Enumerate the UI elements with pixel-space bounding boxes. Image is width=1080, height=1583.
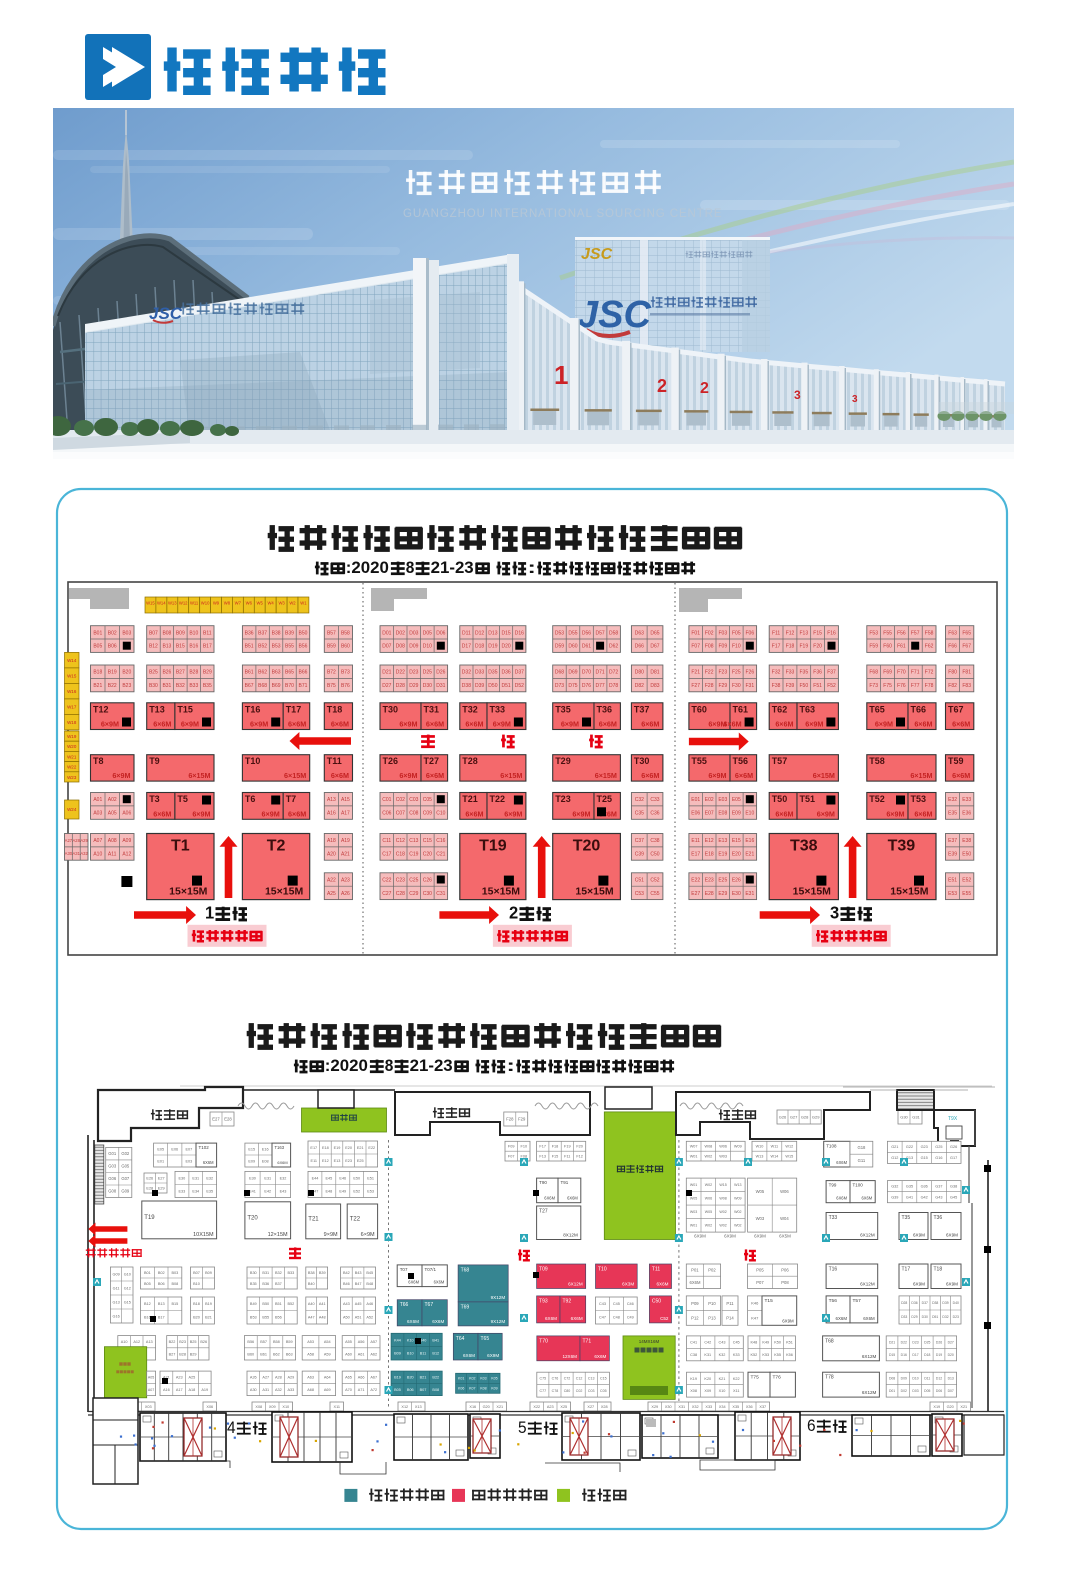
svg-text:F25: F25 bbox=[732, 670, 741, 676]
svg-text:W15: W15 bbox=[785, 1154, 793, 1158]
svg-text:K52: K52 bbox=[751, 1353, 758, 1357]
svg-text:B05: B05 bbox=[394, 1388, 401, 1392]
svg-text:G43: G43 bbox=[935, 1196, 942, 1200]
svg-text:6×9M: 6×9M bbox=[561, 720, 579, 729]
svg-text:B43: B43 bbox=[355, 1271, 362, 1275]
svg-text:A07: A07 bbox=[148, 1388, 154, 1392]
svg-text:6: 6 bbox=[807, 1416, 816, 1435]
svg-text:E51: E51 bbox=[367, 1176, 374, 1180]
svg-text:W15: W15 bbox=[146, 601, 155, 606]
svg-text:E18: E18 bbox=[705, 851, 714, 857]
svg-text:W2: W2 bbox=[289, 601, 296, 606]
svg-text:6×15M: 6×15M bbox=[284, 771, 306, 780]
svg-text:A56: A56 bbox=[358, 1340, 365, 1344]
svg-text:6X12M: 6X12M bbox=[860, 1233, 875, 1238]
svg-text:B57: B57 bbox=[327, 630, 336, 636]
svg-text:D03: D03 bbox=[409, 630, 418, 636]
svg-text:T100: T100 bbox=[853, 1183, 864, 1188]
svg-text:D21: D21 bbox=[889, 1340, 895, 1344]
svg-text:6X6M: 6X6M bbox=[407, 1319, 419, 1324]
svg-text:F26: F26 bbox=[745, 670, 754, 676]
svg-text:X33: X33 bbox=[705, 1405, 712, 1409]
svg-text:E22: E22 bbox=[368, 1146, 375, 1150]
svg-text:G03: G03 bbox=[108, 1164, 117, 1169]
svg-text:W05: W05 bbox=[756, 1189, 765, 1194]
svg-text:T16: T16 bbox=[829, 1267, 838, 1273]
svg-text:E13: E13 bbox=[334, 1159, 341, 1163]
svg-text:D01: D01 bbox=[382, 630, 391, 636]
svg-text:W22: W22 bbox=[67, 765, 77, 770]
svg-text:6×15M: 6×15M bbox=[188, 771, 210, 780]
svg-text:D39: D39 bbox=[475, 683, 484, 689]
svg-text:X03: X03 bbox=[145, 1405, 152, 1409]
svg-text:6×6M: 6×6M bbox=[288, 720, 306, 729]
svg-text:B18: B18 bbox=[93, 670, 102, 676]
svg-text:B57: B57 bbox=[260, 1340, 267, 1344]
svg-text:C43: C43 bbox=[719, 1341, 726, 1345]
svg-text:B20: B20 bbox=[193, 1316, 200, 1320]
svg-text:G11: G11 bbox=[858, 1158, 866, 1163]
svg-text:D17: D17 bbox=[462, 644, 471, 650]
svg-text:D66: D66 bbox=[635, 644, 644, 650]
svg-text:C47: C47 bbox=[599, 1316, 606, 1320]
svg-text:A17: A17 bbox=[176, 1388, 183, 1392]
svg-text:W23: W23 bbox=[67, 775, 77, 780]
svg-text:T15: T15 bbox=[177, 704, 193, 714]
svg-text:D27: D27 bbox=[382, 683, 391, 689]
svg-text:B66: B66 bbox=[299, 670, 308, 676]
svg-text:A15: A15 bbox=[341, 797, 350, 803]
svg-text:X35: X35 bbox=[732, 1405, 739, 1409]
svg-text:W02: W02 bbox=[734, 1224, 741, 1228]
svg-text:B32: B32 bbox=[275, 1271, 282, 1275]
svg-text:D63: D63 bbox=[635, 630, 644, 636]
svg-text:6X6M: 6X6M bbox=[836, 1316, 848, 1321]
svg-text:B25: B25 bbox=[149, 670, 158, 676]
svg-text:21-23: 21-23 bbox=[410, 1057, 453, 1075]
svg-text:A02: A02 bbox=[108, 797, 117, 803]
svg-text:B28: B28 bbox=[179, 1352, 186, 1356]
svg-text:G17: G17 bbox=[950, 1156, 957, 1160]
svg-text:F78: F78 bbox=[925, 683, 934, 689]
svg-text:E02: E02 bbox=[705, 797, 714, 803]
svg-text:D20: D20 bbox=[948, 1353, 954, 1357]
svg-text:9×9M: 9×9M bbox=[324, 1232, 338, 1238]
svg-text:E30: E30 bbox=[249, 1176, 256, 1180]
svg-text:G39: G39 bbox=[891, 1196, 898, 1200]
svg-text:B62: B62 bbox=[273, 1352, 280, 1356]
svg-text:D09: D09 bbox=[901, 1377, 907, 1381]
svg-text:T33: T33 bbox=[490, 704, 506, 714]
svg-text:F59: F59 bbox=[869, 644, 878, 650]
svg-text:C10: C10 bbox=[436, 811, 445, 817]
svg-text:E12: E12 bbox=[322, 1159, 329, 1163]
svg-text:A10: A10 bbox=[93, 851, 102, 857]
svg-text:F69: F69 bbox=[883, 670, 892, 676]
svg-text:K07: K07 bbox=[469, 1387, 475, 1391]
svg-text:T163: T163 bbox=[275, 1145, 285, 1150]
svg-text:E09: E09 bbox=[732, 811, 741, 817]
svg-text:B10: B10 bbox=[407, 1352, 414, 1356]
svg-text:C23: C23 bbox=[396, 877, 405, 883]
svg-text:6X9M: 6X9M bbox=[694, 1234, 706, 1239]
svg-text:F15: F15 bbox=[552, 1154, 559, 1158]
svg-text:C19: C19 bbox=[409, 851, 418, 857]
svg-text:B11: B11 bbox=[420, 1352, 426, 1356]
svg-text:F09: F09 bbox=[508, 1145, 515, 1149]
svg-text:K02: K02 bbox=[469, 1377, 475, 1381]
svg-text:C43: C43 bbox=[599, 1302, 606, 1306]
svg-text:4: 4 bbox=[227, 1418, 236, 1437]
svg-text:C06: C06 bbox=[382, 811, 391, 817]
svg-text:F50: F50 bbox=[799, 683, 808, 689]
svg-text:B09: B09 bbox=[205, 1271, 212, 1275]
svg-text:C09: C09 bbox=[423, 811, 432, 817]
svg-text:D13: D13 bbox=[948, 1377, 954, 1381]
svg-text:B56: B56 bbox=[275, 1316, 282, 1320]
svg-text:T70: T70 bbox=[539, 1338, 548, 1344]
svg-text:10X15M: 10X15M bbox=[193, 1232, 214, 1238]
svg-text:B55: B55 bbox=[285, 644, 294, 650]
svg-text:T36: T36 bbox=[934, 1215, 943, 1221]
svg-text:W04: W04 bbox=[780, 1216, 789, 1221]
svg-text:B23: B23 bbox=[179, 1340, 186, 1344]
svg-text:F82: F82 bbox=[948, 683, 957, 689]
svg-text:A16: A16 bbox=[327, 811, 336, 817]
svg-text:W1: W1 bbox=[300, 601, 307, 606]
svg-text:C12: C12 bbox=[396, 838, 405, 844]
svg-text:T63: T63 bbox=[800, 704, 816, 714]
svg-text:G25: G25 bbox=[935, 1145, 942, 1149]
svg-text:C76: C76 bbox=[552, 1377, 559, 1381]
svg-text:F38: F38 bbox=[772, 683, 781, 689]
svg-text:E49: E49 bbox=[339, 1189, 346, 1193]
svg-text:B12: B12 bbox=[432, 1352, 439, 1356]
svg-text:A41: A41 bbox=[319, 1302, 326, 1306]
svg-text:B61: B61 bbox=[260, 1352, 267, 1356]
svg-text:T37: T37 bbox=[634, 704, 650, 714]
svg-text:F67: F67 bbox=[962, 644, 971, 650]
svg-text:C75: C75 bbox=[540, 1377, 547, 1381]
svg-text:T75: T75 bbox=[751, 1375, 760, 1381]
svg-text:E06: E06 bbox=[691, 811, 700, 817]
svg-text:B20: B20 bbox=[407, 1376, 414, 1380]
svg-text:6X9M: 6X9M bbox=[946, 1282, 958, 1287]
svg-text:C02: C02 bbox=[576, 1389, 583, 1393]
svg-text:F76: F76 bbox=[897, 683, 906, 689]
svg-text:F19: F19 bbox=[564, 1145, 571, 1149]
svg-text:B13: B13 bbox=[158, 1302, 165, 1306]
svg-text:C02: C02 bbox=[396, 797, 405, 803]
svg-text:W02: W02 bbox=[734, 1210, 741, 1214]
svg-text:B37: B37 bbox=[258, 630, 267, 636]
svg-text:D03: D03 bbox=[912, 1389, 918, 1393]
svg-text:E43: E43 bbox=[280, 1189, 287, 1193]
svg-text:W19: W19 bbox=[67, 734, 77, 739]
svg-text:D23: D23 bbox=[409, 670, 418, 676]
svg-text:D25: D25 bbox=[924, 1340, 930, 1344]
svg-text:D35: D35 bbox=[488, 670, 497, 676]
svg-text:W10: W10 bbox=[201, 601, 210, 606]
svg-text:B38: B38 bbox=[308, 1271, 315, 1275]
svg-text:T19: T19 bbox=[144, 1215, 155, 1221]
svg-text:D07: D07 bbox=[948, 1389, 954, 1393]
svg-text:6×9M: 6×9M bbox=[399, 771, 417, 780]
svg-text:A12: A12 bbox=[133, 1340, 140, 1344]
svg-text:T20: T20 bbox=[573, 838, 601, 855]
svg-text:T36: T36 bbox=[597, 704, 613, 714]
svg-text:X11: X11 bbox=[733, 1389, 739, 1393]
svg-text:G20: G20 bbox=[947, 1405, 954, 1409]
svg-text:D28: D28 bbox=[396, 683, 405, 689]
svg-text:W15: W15 bbox=[67, 673, 77, 678]
svg-text:K20: K20 bbox=[704, 1377, 711, 1381]
svg-text:T27: T27 bbox=[539, 1209, 548, 1215]
svg-text:A13: A13 bbox=[146, 1340, 153, 1344]
svg-text:B10: B10 bbox=[193, 1282, 200, 1286]
svg-text:D12: D12 bbox=[936, 1377, 942, 1381]
svg-text:P06: P06 bbox=[781, 1268, 789, 1273]
svg-text:E36: E36 bbox=[962, 811, 971, 817]
svg-text:E27: E27 bbox=[158, 1176, 165, 1180]
svg-text:D27: D27 bbox=[948, 1340, 954, 1344]
svg-text:T15: T15 bbox=[765, 1298, 774, 1304]
svg-text:C29: C29 bbox=[409, 891, 418, 897]
svg-text:C15: C15 bbox=[600, 1377, 607, 1381]
svg-text:F81: F81 bbox=[962, 670, 971, 676]
svg-text:C72: C72 bbox=[564, 1377, 571, 1381]
svg-text:F07: F07 bbox=[691, 644, 700, 650]
svg-text:3: 3 bbox=[852, 394, 858, 405]
svg-text:6X6M: 6X6M bbox=[567, 1196, 578, 1201]
svg-text:D30: D30 bbox=[423, 683, 432, 689]
svg-text:K46: K46 bbox=[751, 1301, 759, 1306]
svg-text:F22: F22 bbox=[705, 670, 714, 676]
svg-text:B22: B22 bbox=[108, 683, 117, 689]
svg-text:T22: T22 bbox=[490, 794, 506, 804]
svg-text:B59: B59 bbox=[286, 1340, 293, 1344]
svg-text:D02: D02 bbox=[901, 1389, 907, 1393]
svg-text:A55: A55 bbox=[345, 1340, 352, 1344]
svg-text:D29: D29 bbox=[911, 1315, 917, 1319]
svg-text:W13: W13 bbox=[734, 1183, 741, 1187]
svg-text:B03: B03 bbox=[172, 1271, 179, 1275]
svg-text:T29: T29 bbox=[555, 756, 571, 766]
svg-text:D36: D36 bbox=[502, 670, 511, 676]
svg-text:B15: B15 bbox=[176, 644, 185, 650]
svg-text:X28: X28 bbox=[601, 1405, 608, 1409]
svg-text:6×9M: 6×9M bbox=[805, 720, 823, 729]
svg-text:A26: A26 bbox=[250, 1376, 257, 1380]
svg-text:F12: F12 bbox=[786, 630, 795, 636]
svg-text:G01: G01 bbox=[108, 1151, 117, 1156]
svg-text:D55: D55 bbox=[568, 630, 577, 636]
svg-text:B45: B45 bbox=[366, 1271, 373, 1275]
svg-text:A22: A22 bbox=[327, 877, 336, 883]
svg-text:X37: X37 bbox=[759, 1405, 766, 1409]
svg-text:D05: D05 bbox=[423, 630, 432, 636]
svg-text:W02: W02 bbox=[719, 1210, 726, 1214]
svg-text:A58: A58 bbox=[307, 1352, 314, 1356]
svg-text:D16: D16 bbox=[901, 1353, 907, 1357]
svg-text:E19: E19 bbox=[718, 851, 727, 857]
svg-text:T93: T93 bbox=[539, 1298, 548, 1304]
svg-text:A05: A05 bbox=[108, 811, 117, 817]
svg-text:2: 2 bbox=[657, 376, 667, 396]
svg-text:G12: G12 bbox=[891, 1156, 898, 1160]
svg-text:E50: E50 bbox=[353, 1176, 360, 1180]
svg-text:B31: B31 bbox=[162, 683, 171, 689]
svg-text:B09: B09 bbox=[176, 630, 185, 636]
svg-text:W8: W8 bbox=[224, 601, 231, 606]
svg-text:JSC: JSC bbox=[581, 246, 613, 263]
svg-text:6X9M: 6X9M bbox=[754, 1234, 766, 1239]
svg-text:T61: T61 bbox=[733, 704, 749, 714]
svg-text:B17: B17 bbox=[203, 644, 212, 650]
svg-text:1: 1 bbox=[554, 360, 568, 390]
svg-text:15×15M: 15×15M bbox=[482, 886, 520, 898]
svg-text:W18: W18 bbox=[67, 720, 77, 725]
svg-text:E06: E06 bbox=[171, 1147, 178, 1151]
svg-text:F29: F29 bbox=[718, 683, 727, 689]
svg-text:21-23: 21-23 bbox=[431, 559, 474, 577]
svg-text:D11: D11 bbox=[924, 1377, 930, 1381]
svg-text:A62: A62 bbox=[370, 1352, 377, 1356]
svg-text:K47: K47 bbox=[751, 1315, 759, 1320]
svg-text:E32: E32 bbox=[206, 1176, 213, 1180]
svg-text:D23: D23 bbox=[912, 1340, 918, 1344]
svg-text:T18: T18 bbox=[934, 1267, 943, 1273]
svg-text:T8: T8 bbox=[93, 756, 104, 766]
svg-text:D71: D71 bbox=[596, 670, 605, 676]
svg-text:T28: T28 bbox=[462, 756, 478, 766]
svg-text:G41: G41 bbox=[906, 1196, 913, 1200]
svg-text:P08: P08 bbox=[781, 1280, 789, 1285]
svg-text:A43: A43 bbox=[343, 1302, 350, 1306]
svg-text:D32: D32 bbox=[942, 1315, 948, 1319]
svg-text:D62: D62 bbox=[609, 644, 618, 650]
svg-text:T64: T64 bbox=[456, 1336, 465, 1342]
svg-text:W12: W12 bbox=[179, 601, 188, 606]
svg-text:D33: D33 bbox=[475, 670, 484, 676]
svg-text:T50: T50 bbox=[772, 794, 788, 804]
svg-text:D21: D21 bbox=[382, 670, 391, 676]
svg-text:B15: B15 bbox=[172, 1302, 179, 1306]
svg-text:C16: C16 bbox=[436, 838, 445, 844]
svg-text:B05: B05 bbox=[93, 644, 102, 650]
svg-text:B19: B19 bbox=[394, 1376, 401, 1380]
svg-text:W11: W11 bbox=[771, 1145, 779, 1149]
svg-text:C42: C42 bbox=[704, 1341, 711, 1345]
svg-text:W03: W03 bbox=[756, 1216, 765, 1221]
svg-text:D53: D53 bbox=[555, 630, 564, 636]
svg-text:T09: T09 bbox=[539, 1267, 548, 1273]
svg-text:A28: A28 bbox=[275, 1376, 282, 1380]
svg-text:C33: C33 bbox=[650, 797, 659, 803]
svg-text:6×6M: 6×6M bbox=[288, 809, 306, 818]
svg-text:D38: D38 bbox=[462, 683, 471, 689]
svg-text:W03: W03 bbox=[719, 1154, 727, 1158]
svg-text:E18: E18 bbox=[322, 1146, 329, 1150]
svg-text:X27: X27 bbox=[587, 1405, 594, 1409]
svg-text:B31: B31 bbox=[262, 1271, 269, 1275]
svg-text:6X6M: 6X6M bbox=[432, 1319, 444, 1324]
svg-text:W01: W01 bbox=[690, 1183, 697, 1187]
svg-text:G05: G05 bbox=[121, 1164, 130, 1169]
svg-text:G26: G26 bbox=[950, 1145, 957, 1149]
svg-text:F11: F11 bbox=[772, 630, 780, 636]
svg-text:6×15M: 6×15M bbox=[595, 771, 617, 780]
svg-text:F31: F31 bbox=[745, 683, 754, 689]
svg-text:D76: D76 bbox=[582, 683, 591, 689]
svg-text:B01: B01 bbox=[144, 1271, 151, 1275]
svg-text:X34: X34 bbox=[719, 1405, 726, 1409]
svg-text:A25: A25 bbox=[327, 891, 336, 897]
svg-text:B36: B36 bbox=[262, 1282, 269, 1286]
svg-text:6×9M: 6×9M bbox=[181, 720, 199, 729]
svg-text:C07: C07 bbox=[396, 811, 405, 817]
svg-text:B36: B36 bbox=[245, 630, 254, 636]
svg-text:A29: A29 bbox=[288, 1376, 295, 1380]
svg-text:E21: E21 bbox=[357, 1146, 364, 1150]
svg-text:F52: F52 bbox=[827, 683, 836, 689]
svg-text:X13: X13 bbox=[415, 1405, 422, 1409]
svg-text:B56: B56 bbox=[299, 644, 308, 650]
svg-text:6×9M: 6×9M bbox=[250, 720, 268, 729]
svg-text:W13: W13 bbox=[168, 601, 177, 606]
svg-text:W08: W08 bbox=[704, 1145, 712, 1149]
svg-text:X22: X22 bbox=[533, 1405, 540, 1409]
svg-text:C50: C50 bbox=[652, 1298, 661, 1304]
svg-text:T66: T66 bbox=[911, 704, 927, 714]
svg-text:B21: B21 bbox=[420, 1376, 427, 1380]
svg-text:G16: G16 bbox=[113, 1314, 120, 1318]
svg-text:F18: F18 bbox=[552, 1145, 559, 1149]
svg-text:6×6M: 6×6M bbox=[426, 771, 444, 780]
svg-text:6×9M: 6×9M bbox=[572, 809, 590, 818]
svg-text:D29: D29 bbox=[409, 683, 418, 689]
svg-text:A64: A64 bbox=[324, 1376, 331, 1380]
svg-text:W10: W10 bbox=[756, 1145, 764, 1149]
svg-text:6X9M: 6X9M bbox=[782, 1318, 794, 1323]
svg-text:X21: X21 bbox=[496, 1405, 503, 1409]
svg-text:T9X: T9X bbox=[948, 1116, 958, 1122]
svg-text:C52: C52 bbox=[660, 1316, 669, 1321]
svg-text:D10: D10 bbox=[912, 1377, 918, 1381]
svg-text:T10: T10 bbox=[245, 756, 261, 766]
svg-text:D67: D67 bbox=[650, 644, 659, 650]
svg-text:B58: B58 bbox=[273, 1340, 280, 1344]
svg-text:A26: A26 bbox=[341, 891, 350, 897]
svg-text:6X6M: 6X6M bbox=[861, 1196, 872, 1201]
svg-text:E13: E13 bbox=[718, 838, 727, 844]
svg-text:14MX16M: 14MX16M bbox=[639, 1339, 660, 1344]
svg-text:E52: E52 bbox=[353, 1189, 360, 1193]
svg-text:B47: B47 bbox=[355, 1282, 362, 1286]
svg-text:B37: B37 bbox=[275, 1282, 282, 1286]
svg-text:T07/1: T07/1 bbox=[425, 1267, 437, 1272]
svg-text:P01: P01 bbox=[691, 1268, 699, 1273]
svg-text:B46: B46 bbox=[343, 1282, 350, 1286]
svg-text:G23: G23 bbox=[921, 1145, 928, 1149]
svg-text:A03: A03 bbox=[93, 811, 102, 817]
svg-text:T62: T62 bbox=[772, 704, 788, 714]
svg-text:1: 1 bbox=[205, 903, 215, 923]
svg-text:T56: T56 bbox=[829, 1298, 838, 1304]
svg-text:A10: A10 bbox=[121, 1340, 128, 1344]
svg-text:C48: C48 bbox=[613, 1316, 620, 1320]
svg-text:6×6M: 6×6M bbox=[775, 809, 793, 818]
